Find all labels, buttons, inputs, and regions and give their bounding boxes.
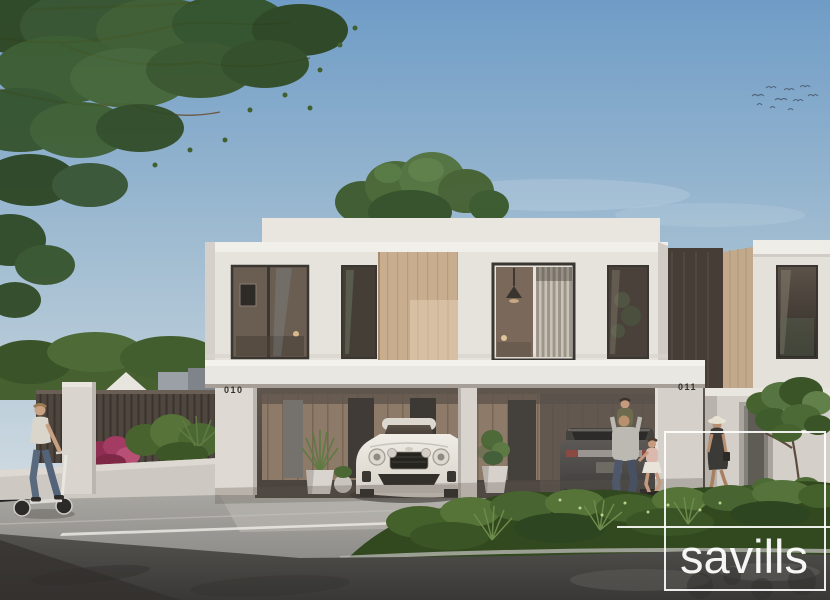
house-number-011: 011 [678, 382, 697, 392]
corner-window-right [608, 266, 648, 358]
sun-hat [708, 418, 726, 424]
house-number-010: 010 [224, 385, 244, 395]
car-badge [405, 447, 413, 451]
townhouse-render-scene: 010 011 savills [0, 0, 830, 600]
taillight-bar [566, 450, 654, 457]
girl-top [646, 448, 658, 463]
man-head [619, 416, 630, 427]
framed-art [240, 284, 256, 306]
right-window [777, 266, 817, 358]
carport-door [508, 400, 536, 480]
stair-window-left [342, 266, 376, 358]
utility-panel [283, 400, 303, 478]
man-shirt [612, 427, 639, 461]
front-intake [378, 474, 440, 485]
bedroom-window-left [232, 266, 308, 358]
girl-skirt [642, 462, 662, 473]
pillar-010 [215, 380, 257, 495]
watermark-wordmark: savills [664, 532, 824, 581]
table-lamp [501, 335, 507, 341]
scooter-wheel [14, 500, 30, 516]
person-jeans [33, 450, 37, 498]
gate-pillar [62, 382, 96, 494]
